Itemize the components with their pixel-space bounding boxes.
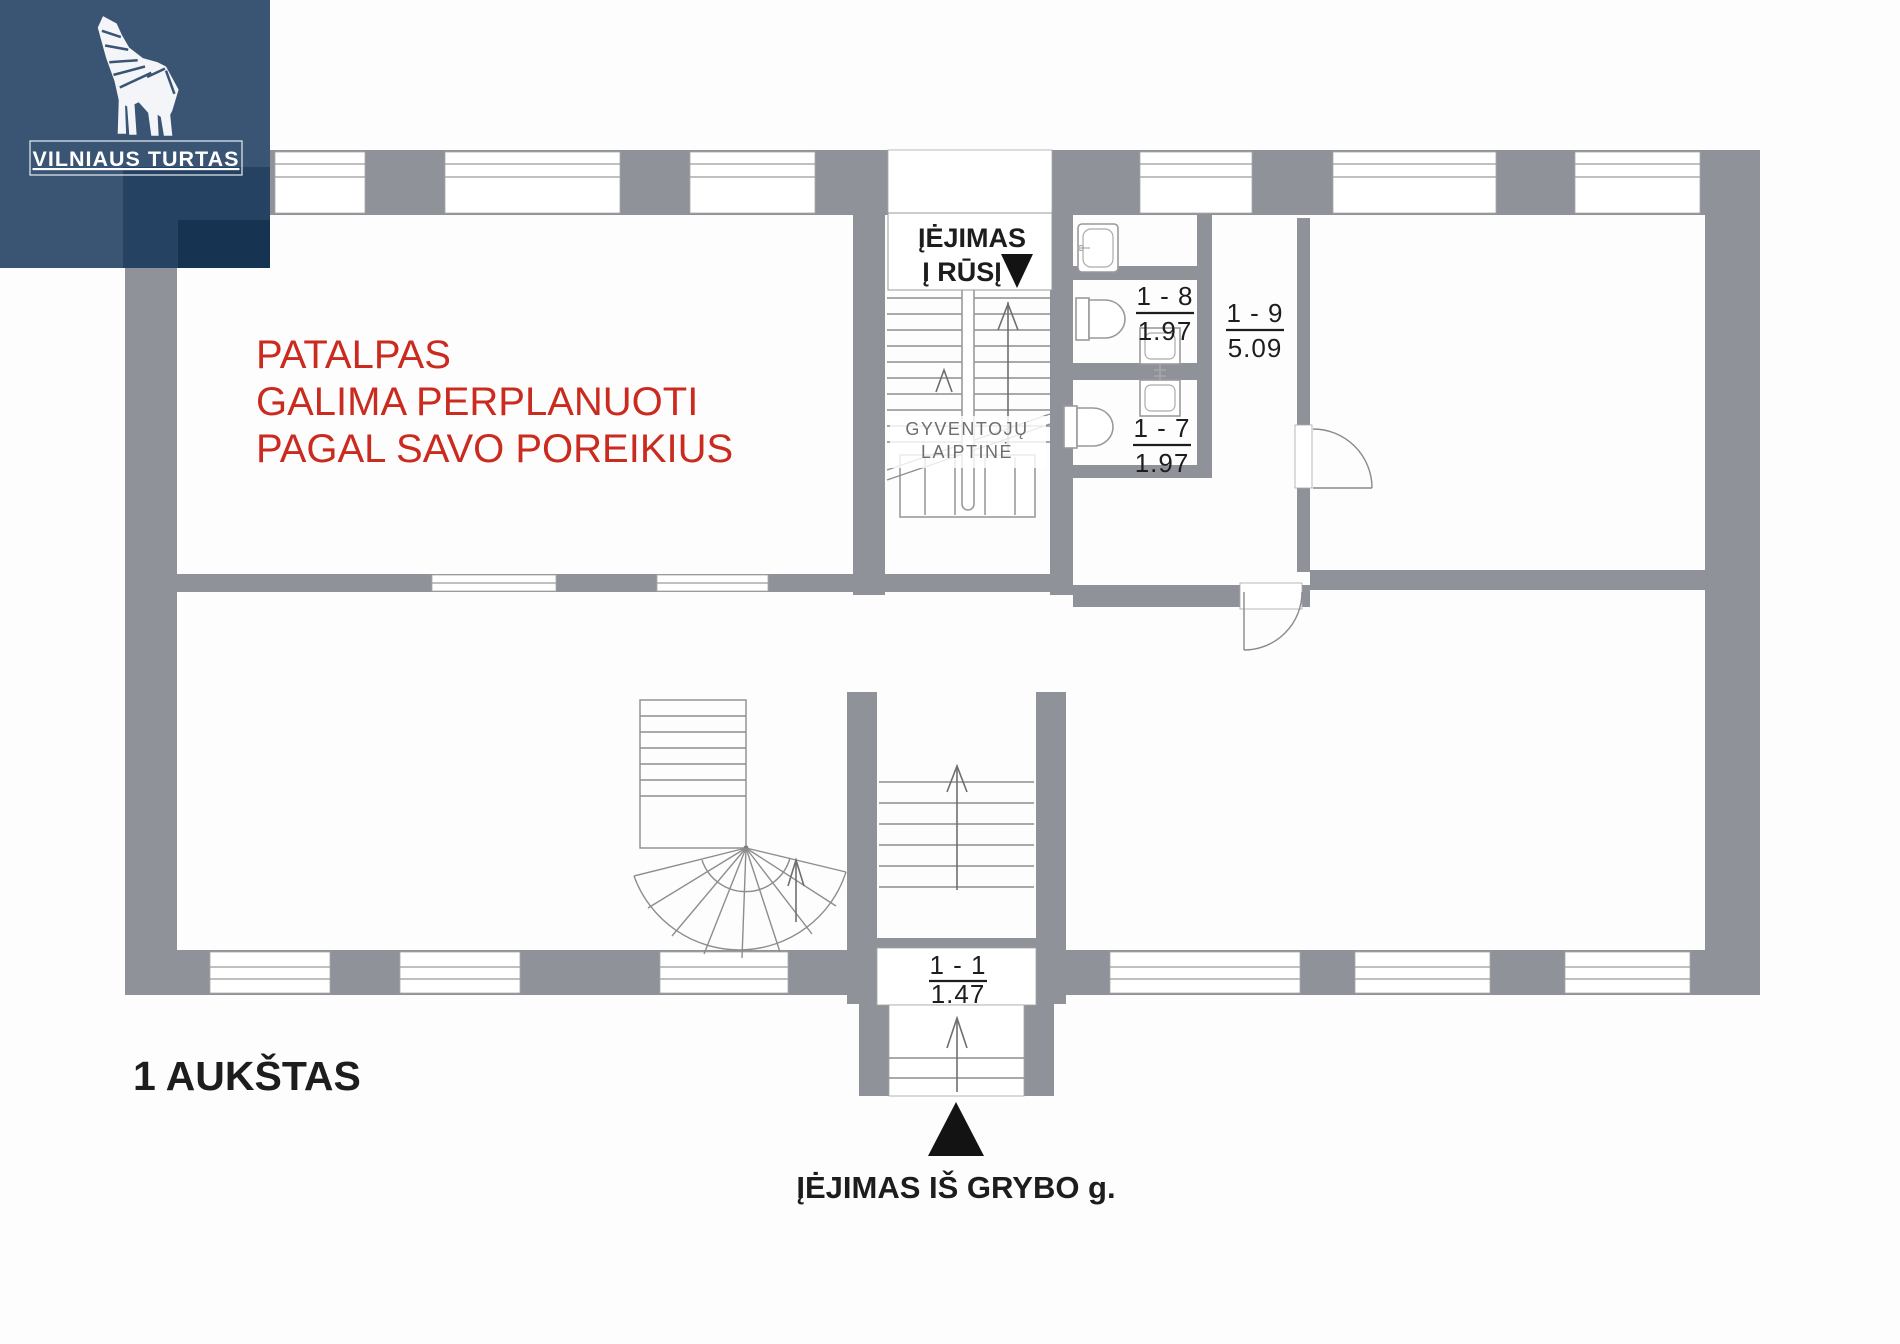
svg-text:1.47: 1.47: [931, 979, 986, 1009]
room-label-1-9: 1 - 9 5.09: [1226, 298, 1284, 363]
top-wall-windows: [275, 150, 1700, 214]
hall-door-opening: [1240, 583, 1302, 609]
basement-entrance-label: ĮĖJIMAS Į RŪSĮ: [888, 213, 1052, 290]
room-label-1-1: 1 - 1 1.47: [929, 950, 987, 1009]
floor-plan-drawing: GYVENTOJŲ LAIPTINĖ ĮĖJIMAS Į RŪSĮ 1 - 8: [0, 0, 1900, 1344]
floor-label: 1 AUKŠTAS: [133, 1053, 361, 1099]
svg-text:1.97: 1.97: [1138, 316, 1193, 346]
svg-text:1.97: 1.97: [1135, 448, 1190, 478]
toilet-icon: [1064, 406, 1113, 448]
corridor-door-opening: [1295, 425, 1312, 488]
winder-stair: [634, 700, 846, 958]
svg-text:1 - 7: 1 - 7: [1133, 413, 1190, 443]
notice-text: PATALPAS GALIMA PERPLANUOTI PAGAL SAVO P…: [256, 333, 733, 471]
street-entrance-label: ĮĖJIMAS IŠ GRYBO g.: [796, 1169, 1115, 1205]
floor-plan-page: GYVENTOJŲ LAIPTINĖ ĮĖJIMAS Į RŪSĮ 1 - 8: [0, 0, 1900, 1344]
vestibule: 1 - 1 1.47: [877, 948, 1036, 1009]
room-label-1-7: 1 - 7 1.97: [1133, 413, 1191, 478]
svg-text:1 - 1: 1 - 1: [929, 950, 986, 980]
brand-name: VILNIAUS TURTAS: [33, 147, 240, 171]
basement-entrance-line2: Į RŪSĮ: [922, 257, 1002, 287]
svg-text:PAGAL SAVO POREIKIUS: PAGAL SAVO POREIKIUS: [256, 427, 733, 471]
entrance-steps: [889, 1005, 1024, 1096]
basement-door-opening: [888, 150, 1052, 214]
basement-entrance-line1: ĮĖJIMAS: [918, 223, 1026, 253]
svg-text:PATALPAS: PATALPAS: [256, 333, 451, 377]
room-label-1-8: 1 - 8 1.97: [1136, 281, 1194, 346]
brand-logo: VILNIAUS TURTAS: [0, 0, 270, 268]
sink-icon: [1078, 224, 1118, 272]
svg-text:GALIMA PERPLANUOTI: GALIMA PERPLANUOTI: [256, 380, 698, 424]
toilet-icon: [1076, 298, 1125, 340]
entrance-stair: [879, 766, 1034, 890]
stairwell-label-line2: LAIPTINĖ: [921, 442, 1013, 462]
svg-text:5.09: 5.09: [1228, 333, 1283, 363]
up-triangle-icon: [928, 1102, 984, 1156]
svg-text:1 - 8: 1 - 8: [1136, 281, 1193, 311]
stairwell-label-line1: GYVENTOJŲ: [905, 419, 1028, 439]
svg-text:1 - 9: 1 - 9: [1226, 298, 1283, 328]
